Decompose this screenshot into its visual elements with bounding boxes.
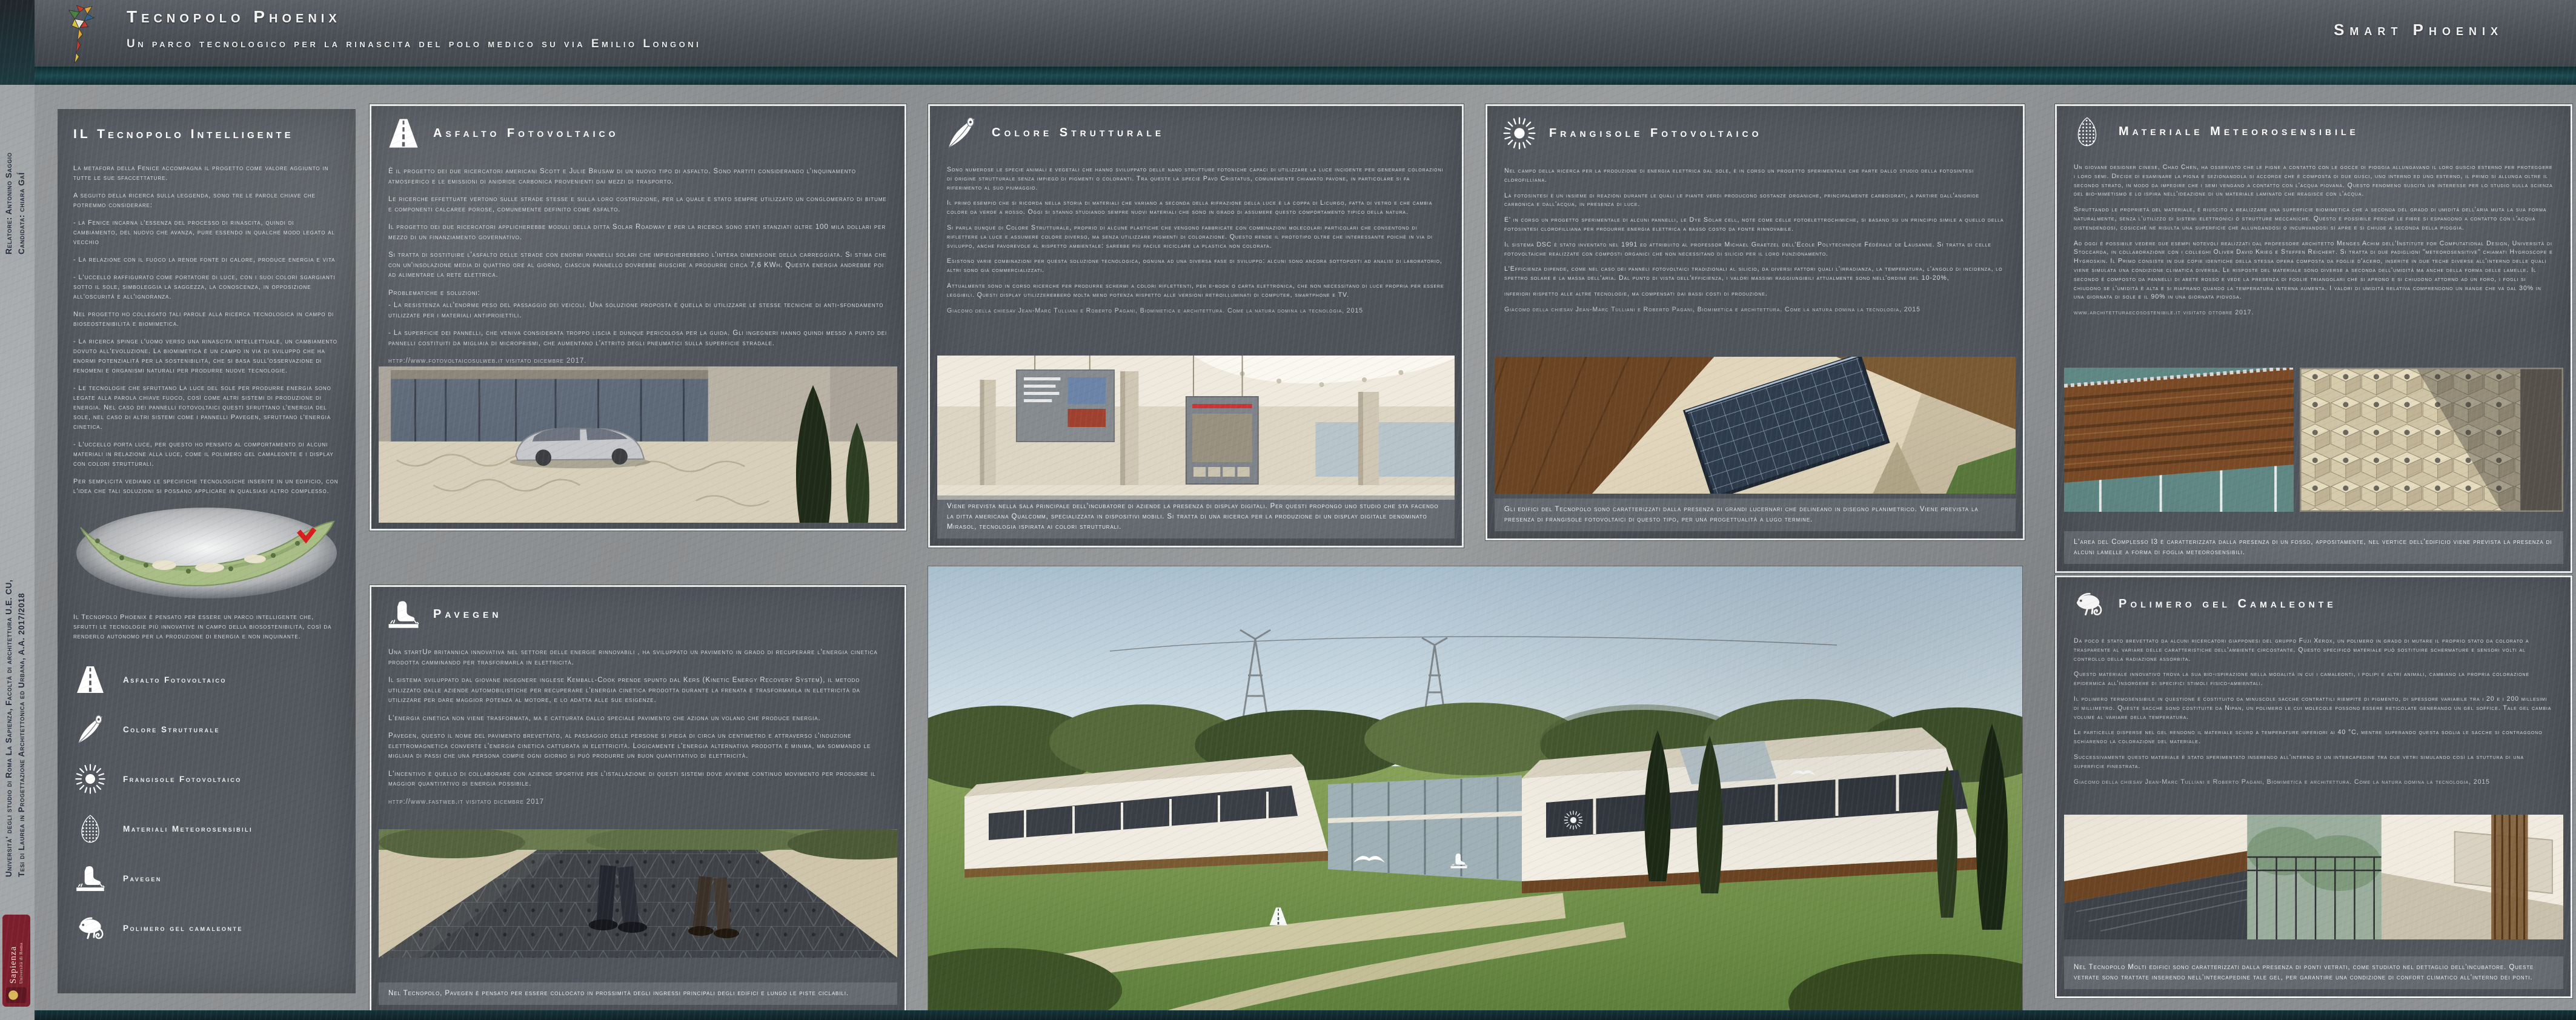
legend-label: Materiali Meteorosensibili: [123, 824, 253, 833]
panel-caption: Gli edifici del Tecnopolo sono caratteri…: [1495, 498, 2016, 531]
panel-source: http://www.fotovoltaicosulweb.it visitat…: [388, 356, 888, 366]
panel-paragraph: Una startUp britannica innovativa nel se…: [388, 647, 888, 667]
map-caption: Il Tecnopolo Phoenix è pensato per esser…: [73, 612, 340, 641]
intro-paragraph: Nel progetto ho collegato tali parole al…: [73, 310, 340, 329]
panel-paragraph: L'Efficienza dipende, come nel caso dei …: [1504, 265, 2006, 283]
poster-title: Tecnopolo Phoenix: [127, 7, 341, 27]
sapienza-crest-icon: [6, 987, 27, 1003]
panel-paragraph: Il progetto dei due ricercatori appliche…: [388, 222, 888, 242]
legend-item: Polimero gel camaleonte: [73, 903, 340, 953]
footer-teal-stripe: [0, 1010, 2576, 1020]
panel-source: Giacomo della chiesav Jean-Marc Tulliani…: [2074, 778, 2554, 787]
panel-paragraph: Il primo esempio che si ricorda nella st…: [947, 199, 1445, 217]
render-pavegen-walkway: [379, 829, 897, 958]
legend-item: Frangisole Fotovoltaico: [73, 754, 340, 804]
render-colore-interior: [937, 356, 1455, 500]
footstep-icon: [73, 862, 107, 895]
intro-paragraph: - Le tecnologie che sfruttano La luce de…: [73, 383, 340, 432]
panel-source: www.architetturaecosostenibile.it visita…: [2074, 308, 2554, 317]
legend-item: Colore Strutturale: [73, 704, 340, 754]
university-line-2: Tesi di Laurea in Progettazione Architet…: [17, 593, 26, 877]
poster: Tecnopolo Phoenix Un parco tecnologico p…: [0, 0, 2576, 1020]
intro-paragraph: A seguito della ricerca sulla leggenda, …: [73, 191, 340, 210]
render-tecnopolo-perspective: [928, 566, 2022, 1018]
panel-paragraph: Attualmente sono in corso ricerche per p…: [947, 282, 1445, 300]
panel-caption: L'area del Complesso I3 è caratterizzata…: [2064, 531, 2563, 564]
panel-source: Giacomo della chiesav Jean-Marc Tulliani…: [1504, 305, 2006, 314]
feather-icon: [944, 116, 980, 150]
panel-paragraph: Da poco è stato brevettato da alcuni ric…: [2074, 637, 2554, 663]
legend-label: Polimero gel camaleonte: [123, 924, 243, 933]
panel-paragraph: Questo materiale innovativo trova la sua…: [2074, 670, 2554, 688]
panel-title: Polimero gel Camaleonte: [2119, 597, 2337, 611]
panel-caption: Viene prevista nella sala principale del…: [937, 495, 1455, 538]
candidata-line: Candidata: chiara GaÍ: [17, 172, 26, 254]
panel-paragraph: L'incentivo è quello di collaborare con …: [388, 769, 888, 789]
panel-polimero-gel-camaleonte: Polimero gel Camaleonte Da poco è stato …: [2055, 575, 2572, 998]
panel-title: Asfalto Fotovoltaico: [433, 127, 619, 141]
header-teal-stripe: [35, 67, 2576, 85]
panel-paragraph: Nel campo della ricerca per la produzion…: [1504, 167, 2006, 185]
poster-right-title: Smart Phoenix: [2334, 21, 2503, 39]
panel-paragraph: - La resistenza all'enorme peso del pass…: [388, 300, 888, 320]
panel-caption: Nel Tecnopolo Molti edifici sono caratte…: [2064, 956, 2563, 989]
panel-paragraph: Il sistema sviluppato dal giovane ingegn…: [388, 675, 888, 706]
panel-title: Pavegen: [433, 608, 502, 621]
render-materiale-wood-facade: [2064, 368, 2294, 512]
render-materiale-origami-facade: [2300, 368, 2563, 512]
sun-icon: [1502, 116, 1537, 151]
hanging-banner: [1186, 397, 1258, 484]
header-band: Tecnopolo Phoenix Un parco tecnologico p…: [35, 0, 2576, 67]
panel-paragraph: Le ricerche effettuate vertono sulle str…: [388, 194, 888, 214]
sapienza-logo-name: Sapienza: [9, 942, 19, 984]
legend-label: Colore Strutturale: [123, 725, 220, 734]
intro-paragraph: - La ricerca spinge l'uomo verso una rin…: [73, 337, 340, 376]
legend-item: Materiali Meteorosensibili: [73, 804, 340, 853]
render-polimero-glass-bridge: [2064, 815, 2563, 939]
panel-source: http://www.fastweb.it visitato dicembre …: [388, 797, 888, 807]
intro-paragraph: - L'uccello raffigurato come portatore d…: [73, 273, 340, 302]
panel-paragraph: Sfruttando le proprietà del materiale, è…: [2074, 205, 2554, 232]
feather-icon: [73, 714, 107, 745]
panel-colore-strutturale: Colore Strutturale Sono numerose le spec…: [928, 104, 1464, 548]
pinecone-icon: [2071, 116, 2106, 147]
intro-paragraph: - La relazione con il fuoco la rende fon…: [73, 255, 340, 265]
panel-paragraph: Un giovane designer cinese, Chao Chen, h…: [2074, 163, 2554, 199]
legend-item: Pavegen: [73, 853, 340, 903]
panel-materiale-meteorosensibile: Materiale Meteorosensibile Un giovane de…: [2055, 104, 2572, 573]
panel-paragraph: È il progetto dei due ricercatori americ…: [388, 167, 888, 187]
masterplan-map: [73, 505, 340, 606]
panel-source: Giacomo della chiesav Jean-Marc Tulliani…: [947, 306, 1445, 316]
university-line-1: Università' degli studio di Roma La Sapi…: [4, 580, 13, 877]
panel-paragraph: Le particelle disperse nel gel rendono i…: [2074, 728, 2554, 746]
intro-paragraph: - la Fenice incarna l'essenza del proces…: [73, 218, 340, 247]
pinecone-icon: [73, 813, 107, 844]
panel-paragraph: Il polimero termosensibile in questione …: [2074, 695, 2554, 721]
hanging-banner: [1017, 370, 1114, 442]
relatore-line: Relatore: Antonino Saggio: [4, 152, 13, 254]
panel-title: Frangisole Fotovoltaico: [1549, 127, 1762, 141]
panel-paragraph: Sono numerose le specie animali e vegeta…: [947, 165, 1445, 192]
panel-paragraph: Il sistema DSC è stato inventato nel 199…: [1504, 240, 2006, 259]
panel-title: Materiale Meteorosensibile: [2119, 125, 2359, 139]
university-sidebar: Università' degli studio di Roma La Sapi…: [0, 0, 35, 1020]
legend-label: Pavegen: [123, 874, 162, 883]
render-frangisole-roof: [1495, 357, 2016, 494]
panel-paragraph: Ad oggi è possibile vedere due esempi no…: [2074, 239, 2554, 302]
panel-paragraph: Problematiche e soluzioni:: [388, 288, 888, 299]
sidebar-top-cap: [0, 0, 35, 85]
panel-paragraph: inferiori rispetto alle altre tecnologie…: [1504, 290, 2006, 299]
legend-item: Asfalto Fotovoltaico: [73, 655, 340, 704]
panel-caption: Nel Tecnopolo, Pavegen è pensato per ess…: [379, 982, 897, 1005]
legend-label: Frangisole Fotovoltaico: [123, 775, 242, 784]
panel-paragraph: L'energia cinetica non viene trasformata…: [388, 714, 888, 724]
legend-label: Asfalto Fotovoltaico: [123, 675, 227, 684]
panel-paragraph: - La superficie dei pannelli, che veniva…: [388, 328, 888, 348]
panel-title: Colore Strutturale: [992, 126, 1164, 140]
panel-paragraph: E' in corso un progetto sperimentale di …: [1504, 216, 2006, 234]
road-icon: [386, 116, 421, 151]
panel-paragraph: Pavegen, questo il nome del pavimento br…: [388, 731, 888, 761]
panel-paragraph: La fotosintesi è un insieme di reazioni …: [1504, 191, 2006, 210]
intro-title: IL Tecnopolo Intelligente: [73, 127, 340, 142]
glass-link: [1328, 775, 1522, 881]
render-asfalto-exterior: [379, 366, 897, 523]
road-icon: [73, 663, 107, 696]
panel-paragraph: Si tratta di sostituire l'asfalto delle …: [388, 250, 888, 280]
intro-paragraph: La metafora della Fenice accompagna il p…: [73, 164, 340, 183]
chameleon-icon: [2071, 587, 2106, 621]
panel-frangisole-fotovoltaico: Frangisole Fotovoltaico Nel campo della …: [1486, 104, 2025, 540]
panel-paragraph: Successivamente questo materiale è stato…: [2074, 753, 2554, 771]
panel-pavegen: Pavegen Una startUp britannica innovativ…: [370, 585, 906, 1014]
sapienza-logo-sub: Università di Roma: [18, 942, 24, 984]
panel-asfalto-fotovoltaico: Asfalto Fotovoltaico È il progetto dei d…: [370, 104, 906, 531]
footstep-icon: [386, 597, 421, 632]
phoenix-logo: [58, 2, 102, 65]
sapienza-logo: Sapienza Università di Roma: [2, 915, 30, 1007]
intro-paragraph: Per semplicità vediamo le specifiche tec…: [73, 477, 340, 496]
chameleon-icon: [73, 912, 107, 944]
poster-subtitle: Un parco tecnologico per la rinascita de…: [127, 38, 701, 51]
panel-paragraph: Esistono varie combinazioni per questa s…: [947, 257, 1445, 275]
intro-panel: IL Tecnopolo Intelligente La metafora de…: [58, 109, 356, 993]
panel-paragraph: Si parla dunque di Colore Strutturale, p…: [947, 224, 1445, 250]
sun-icon: [73, 763, 107, 795]
intro-paragraph: - L'uccello porta luce, per questo ho pe…: [73, 440, 340, 469]
